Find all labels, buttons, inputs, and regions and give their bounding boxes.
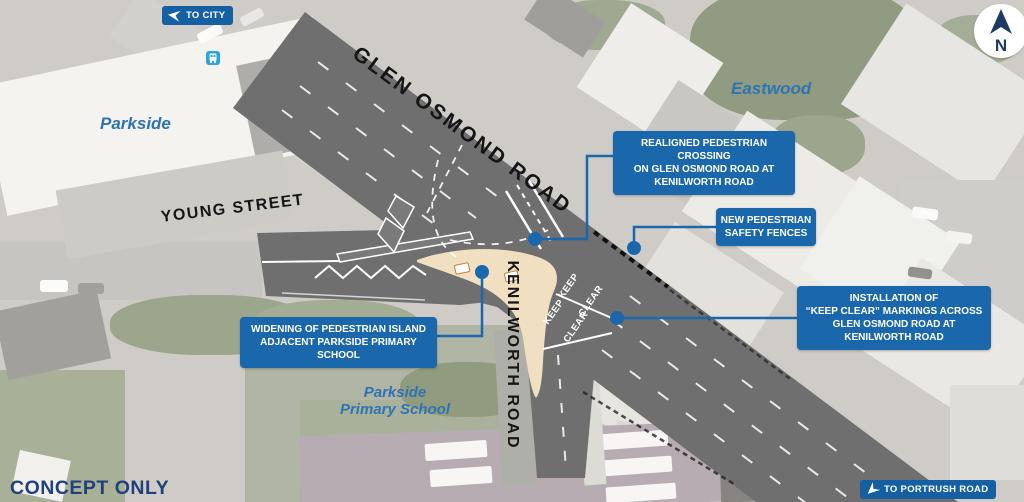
callout-line: REALIGNED PEDESTRIAN CROSSING: [616, 137, 792, 163]
callout-line: GLEN OSMOND ROAD AT: [800, 318, 988, 331]
callout-keep-clear-markings: INSTALLATION OF “KEEP CLEAR” MARKINGS AC…: [797, 286, 991, 350]
to-portrush-road-badge: TO PORTRUSH ROAD: [860, 480, 996, 499]
to-city-label: TO CITY: [186, 10, 225, 21]
bus-glyph: [207, 52, 219, 64]
callout-line: KENILWORTH ROAD: [800, 331, 988, 344]
callout-widening-island: WIDENING OF PEDESTRIAN ISLAND ADJACENT P…: [240, 317, 437, 368]
callout-line: INSTALLATION OF: [800, 292, 988, 305]
callout-line: KENILWORTH ROAD: [616, 176, 792, 189]
school-label-line2: Primary School: [330, 401, 460, 418]
to-portrush-arrow-icon: [863, 480, 881, 498]
suburb-label-parkside: Parkside: [100, 114, 171, 134]
bus-stop-icon: [206, 51, 220, 65]
to-city-arrow-icon: [167, 8, 182, 23]
to-city-badge: TO CITY: [162, 6, 233, 25]
callout-line: NEW PEDESTRIAN: [719, 214, 813, 227]
callout-line: SAFETY FENCES: [719, 227, 813, 240]
callout-line: WIDENING OF PEDESTRIAN ISLAND: [243, 323, 434, 336]
road-label-kenilworth: KENILWORTH ROAD: [503, 229, 521, 481]
svg-text:N: N: [995, 36, 1007, 55]
north-arrow-icon: N: [974, 4, 1024, 58]
callout-safety-fences: NEW PEDESTRIAN SAFETY FENCES: [716, 208, 816, 246]
callout-realigned-crossing: REALIGNED PEDESTRIAN CROSSING ON GLEN OS…: [613, 131, 795, 195]
concept-only-watermark: CONCEPT ONLY: [10, 477, 169, 500]
to-portrush-label: TO PORTRUSH ROAD: [884, 484, 988, 495]
callout-line: “KEEP CLEAR” MARKINGS ACROSS: [800, 305, 988, 318]
school-label-line1: Parkside: [330, 384, 460, 401]
north-arrow: N: [974, 4, 1024, 58]
callout-line: ON GLEN OSMOND ROAD AT: [616, 163, 792, 176]
concept-map: KEEP CLEAR KEEP CLEAR: [0, 0, 1024, 502]
label-parkside-primary-school: Parkside Primary School: [330, 384, 460, 418]
suburb-label-eastwood: Eastwood: [731, 79, 811, 99]
callout-line: ADJACENT PARKSIDE PRIMARY SCHOOL: [243, 336, 434, 362]
